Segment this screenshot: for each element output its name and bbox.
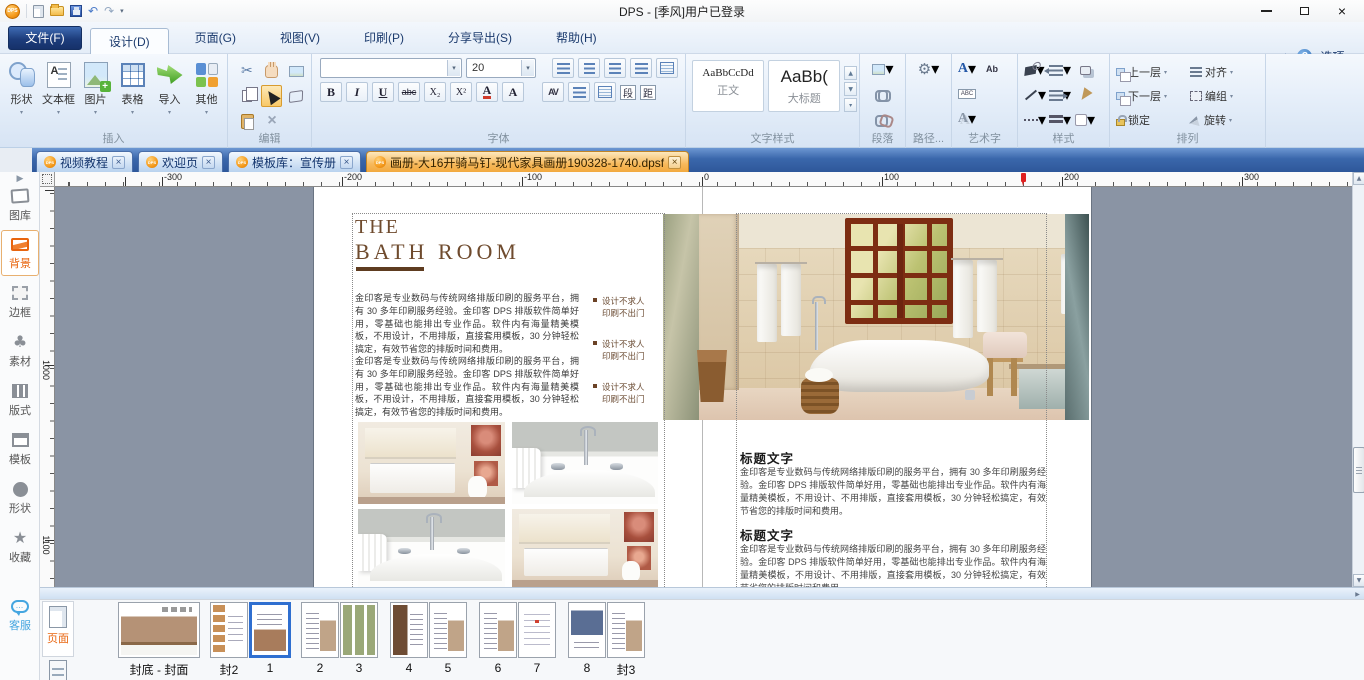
ribbon-group-font: ▾ 20▾ B I U abc X₂ X² A A AV: [312, 54, 686, 148]
titlebar: DPS ↶ ↷ ▾ DPS - [季风]用户已登录 ×: [0, 0, 1364, 22]
thumb-page-8[interactable]: [568, 602, 606, 658]
cursor-icon: [263, 87, 280, 105]
dashed-line-icon: [1024, 119, 1038, 121]
ruler-label: -300: [164, 172, 182, 182]
thumb-page-5[interactable]: [429, 602, 467, 658]
arrow-lines-right-icon: [1049, 90, 1063, 101]
doctab-left-filler: [0, 148, 32, 172]
thumb-label: 封2: [210, 661, 248, 678]
master-page-icon[interactable]: [49, 660, 67, 680]
ribbon-group-style: ▾ ▾ ▾ ▾ ▾ ▾ ▾ 样式: [1018, 54, 1110, 148]
dropdown-icon[interactable]: ▾: [1063, 110, 1071, 130]
delete-x-icon: ×: [267, 112, 276, 130]
layout-grid-icon: [12, 384, 28, 398]
copy-button[interactable]: [236, 85, 258, 107]
thumb-label: 6: [479, 661, 517, 675]
line-weight-button[interactable]: ▾: [1049, 109, 1071, 131]
dropdown-icon[interactable]: ▾: [1087, 110, 1095, 130]
close-tab-icon[interactable]: ×: [112, 156, 125, 169]
wordart-style-button[interactable]: A▾: [956, 58, 978, 80]
thumb-label: 3: [340, 661, 378, 675]
tab-help[interactable]: 帮助(H): [538, 25, 615, 51]
scroll-up-icon[interactable]: ▲: [1353, 172, 1364, 185]
delete-button[interactable]: ×: [261, 110, 283, 132]
ruler-origin-box: [40, 172, 55, 187]
line-weight-icon: [1049, 115, 1063, 125]
align-center-button[interactable]: [578, 58, 600, 78]
lasso-icon: [289, 89, 303, 102]
wordart-shadow-button[interactable]: A▾: [956, 108, 978, 130]
subscript-button[interactable]: X₂: [424, 82, 446, 102]
broken-link-icon: [875, 115, 891, 124]
font-size-combobox[interactable]: 20▾: [466, 58, 536, 78]
ruler-cursor-marker: [1021, 173, 1026, 182]
align-icon: [1190, 67, 1202, 77]
select-tool-button[interactable]: [261, 85, 283, 107]
horizontal-ruler[interactable]: -300 -200 -100 0 100 200 300: [55, 172, 1352, 187]
spellcheck-button[interactable]: ABC: [956, 83, 978, 105]
bring-forward-icon: [1116, 68, 1125, 76]
link-frames-button[interactable]: [872, 83, 894, 105]
paint-bucket-icon: [1025, 64, 1037, 75]
button-label: 形状: [11, 91, 33, 107]
thumb-page-1-selected[interactable]: [249, 602, 291, 658]
thumb-label: 封3: [607, 661, 645, 678]
star-icon: ★: [13, 530, 27, 546]
text-wrap-button[interactable]: ▾: [872, 58, 894, 80]
doc-tab-label: 视频教程: [60, 154, 108, 171]
dropdown-icon[interactable]: ▾: [1038, 110, 1046, 130]
ribbon-group-text-style: AaBbCcDd 正文 AaBb( 大标题 ▲ ▼ ▾ 文字样式: [686, 54, 860, 148]
other-icon: [196, 63, 218, 87]
align-center-icon: [584, 63, 595, 74]
align-right-button[interactable]: [604, 58, 626, 78]
group-label-insert: 插入: [0, 130, 227, 146]
pages-panel: 页面 封底 - 封面 封2 1 2 3 4 5 6 7 8 封3: [40, 599, 1364, 680]
ruler-label: 100: [884, 172, 899, 182]
letter-spacing-button[interactable]: AV: [542, 82, 564, 102]
vertical-ruler[interactable]: 1000 1100: [40, 187, 55, 587]
dropdown-icon[interactable]: ▾: [931, 59, 939, 79]
dps-app: DPS ↶ ↷ ▾ DPS - [季风]用户已登录 × 文件(F) 设计(D) …: [0, 0, 1364, 680]
thumb-label: 2: [301, 661, 339, 675]
dropdown-icon[interactable]: ▾: [447, 60, 460, 76]
italic-button[interactable]: I: [346, 82, 368, 102]
vertical-scroll-thumb[interactable]: [1353, 447, 1364, 493]
window-title: DPS - [季风]用户已登录: [0, 3, 1364, 20]
distribute-icon: [660, 62, 674, 74]
shape-square-icon: [1075, 114, 1087, 126]
button-label: 表格: [122, 91, 144, 107]
dropdown-icon[interactable]: ▾: [131, 109, 134, 116]
copy-style-button[interactable]: [1074, 59, 1096, 81]
close-tab-icon[interactable]: ×: [202, 156, 215, 169]
sidebar-item-favorites[interactable]: ★ 收藏: [1, 524, 39, 570]
menubar: 文件(F) 设计(D) 页面(G) 视图(V) 印刷(P) 分享导出(S) 帮助…: [0, 22, 1364, 54]
spacing-settings-button[interactable]: 距: [640, 85, 656, 100]
style-scroll-up[interactable]: ▲: [844, 66, 857, 80]
window-controls: ×: [1258, 0, 1360, 22]
text-style-body[interactable]: AaBbCcDd 正文: [692, 60, 764, 112]
align-button[interactable]: 对齐▾: [1190, 64, 1262, 80]
doc-tab-template-library[interactable]: DPS 模板库：宣传册 ×: [228, 151, 361, 172]
group-icon: [1190, 91, 1202, 101]
template-icon: [12, 433, 29, 447]
style-preview: AaBb(: [769, 67, 839, 87]
thumb-label: 封底 - 封面: [104, 661, 214, 678]
tab-print[interactable]: 印刷(P): [346, 25, 422, 51]
link-icon: [875, 90, 891, 99]
thumb-page-7[interactable]: [518, 602, 556, 658]
horizontal-scrollbar[interactable]: ▶: [40, 587, 1364, 599]
align-left-button[interactable]: [552, 58, 574, 78]
picture-edit-icon: [289, 66, 304, 77]
gear-icon: ⚙: [918, 60, 931, 78]
dash-style-button[interactable]: ▾: [1024, 109, 1046, 131]
thumb-label: 8: [568, 661, 606, 675]
dps-file-icon: DPS: [44, 156, 56, 168]
highlight-color-button[interactable]: A: [502, 82, 524, 102]
dropdown-icon[interactable]: ▾: [968, 109, 976, 129]
align-left-icon: [557, 63, 570, 74]
pages-tab-label: 页面: [47, 630, 69, 646]
ribbon-group-arrange: 上一层▾ 对齐▾ 下一层▾ 编组▾ 锁定 旋转▾ 排列: [1110, 54, 1266, 148]
align-right-icon: [609, 63, 621, 74]
dropdown-icon[interactable]: ▾: [57, 109, 60, 116]
page-icon: [49, 606, 67, 628]
line-color-button[interactable]: ▾: [1024, 84, 1046, 106]
style-preview: AaBbCcDd: [693, 67, 763, 79]
left-page-margin-guide: [352, 213, 665, 587]
import-arrow-icon: [157, 64, 183, 84]
close-tab-icon[interactable]: ×: [340, 156, 353, 169]
line-spacing-button[interactable]: [568, 82, 590, 102]
picture-icon: [84, 62, 108, 88]
left-sidebar: ▶ 图库 背景 边框 ♣ 素材 版式 模板 形状 ★: [0, 172, 40, 680]
group-label-style: 样式: [1018, 130, 1109, 146]
dps-file-icon: DPS: [374, 156, 386, 168]
ruler-label: 300: [1244, 172, 1259, 182]
sidebar-item-material[interactable]: ♣ 素材: [1, 328, 39, 374]
line-start-button[interactable]: ▾: [1049, 59, 1071, 81]
gallery-icon: [11, 188, 30, 203]
send-backward-button[interactable]: 下一层▾: [1116, 88, 1188, 104]
ruler-label: 1100: [41, 530, 51, 560]
sidebar-item-support[interactable]: … 客服: [1, 592, 39, 638]
minimize-button[interactable]: [1258, 3, 1274, 19]
doc-tab-current-album[interactable]: DPS 画册-大16开骑马钉-现代家具画册190328-1740.dpsf ×: [366, 151, 689, 172]
doc-tab-label: 模板库：宣传册: [252, 154, 336, 171]
sidebar-item-gallery[interactable]: 图库: [1, 182, 39, 228]
pen-line-icon: [1025, 90, 1037, 101]
sidebar-item-border[interactable]: 边框: [1, 279, 39, 325]
dropdown-icon[interactable]: ▾: [885, 59, 893, 79]
unlink-frames-button[interactable]: [872, 108, 894, 130]
thumb-page-2[interactable]: [301, 602, 339, 658]
doc-tab-welcome[interactable]: DPS 欢迎页 ×: [138, 151, 223, 172]
doc-tab-video-tutorial[interactable]: DPS 视频教程 ×: [36, 151, 133, 172]
thumb-inside-back[interactable]: [607, 602, 645, 658]
dropdown-icon[interactable]: ▾: [521, 60, 534, 76]
ribbon-group-path: ⚙▾ 路径...: [906, 54, 952, 148]
group-label-edit: 编辑: [228, 130, 311, 146]
glass-panel-left: [663, 214, 699, 420]
font-name-combobox[interactable]: ▾: [320, 58, 462, 78]
font-color-a-icon: A: [483, 85, 492, 99]
button-label: 文本框: [42, 91, 75, 107]
shape-circle-icon: [13, 482, 28, 497]
lock-button[interactable]: 锁定: [1116, 112, 1188, 128]
thumb-label: 4: [390, 661, 428, 675]
file-menu-button[interactable]: 文件(F): [8, 26, 82, 50]
bold-button[interactable]: B: [320, 82, 342, 102]
thumb-cover[interactable]: [118, 602, 200, 658]
group-label-paragraph: 段落: [860, 130, 905, 146]
ribbon: 形状 ▾ A 文本框 ▾ 图片 ▾ 表格 ▾ 导入 ▾: [0, 54, 1364, 148]
hand-icon: [265, 65, 278, 78]
thumb-page-3[interactable]: [340, 602, 378, 658]
lock-icon: [1116, 119, 1125, 126]
style-name: 正文: [693, 82, 763, 98]
align-justify-icon: [635, 63, 648, 74]
copy-icon: [242, 90, 252, 102]
ribbon-group-wordart: A▾ Ab ABC A▾ 艺术字: [952, 54, 1018, 148]
thumb-page-6[interactable]: [479, 602, 517, 658]
paste-button[interactable]: [236, 110, 258, 132]
document-tabs: DPS 视频教程 × DPS 欢迎页 × DPS 模板库：宣传册 × DPS 画…: [32, 148, 1364, 172]
ribbon-group-paragraph: ▾ 段落: [860, 54, 906, 148]
dps-file-icon: DPS: [146, 156, 158, 168]
path-button[interactable]: ⚙▾: [918, 58, 940, 80]
ruler-label: -200: [344, 172, 362, 182]
shape-effects-button[interactable]: ▾: [1074, 109, 1096, 131]
format-brush-button[interactable]: [1074, 84, 1096, 106]
sidebar-item-template[interactable]: 模板: [1, 426, 39, 472]
scroll-down-icon[interactable]: ▼: [1353, 574, 1364, 587]
group-label-arrange: 排列: [1110, 130, 1265, 146]
button-label: 其他: [196, 91, 218, 107]
style-gallery-expand[interactable]: ▾: [844, 98, 857, 112]
restore-button[interactable]: [1296, 3, 1312, 19]
wordart-a-icon: A: [958, 61, 968, 77]
letter-spacing-icon: AV: [548, 87, 558, 97]
strikethrough-button[interactable]: abc: [398, 82, 420, 102]
group-label-path: 路径...: [906, 130, 951, 146]
ruler-label: -100: [524, 172, 542, 182]
columns-icon: [598, 86, 612, 98]
text-style-title[interactable]: AaBb( 大标题: [768, 60, 840, 112]
doc-tab-label: 欢迎页: [162, 154, 198, 171]
vertical-scrollbar[interactable]: ▲ ▼: [1352, 172, 1364, 587]
clipboard-icon: [241, 114, 254, 129]
duplicate-style-icon: [1080, 66, 1091, 75]
tab-page[interactable]: 页面(G): [177, 25, 254, 51]
ruler-label: 200: [1064, 172, 1079, 182]
text-direction-icon: Ab: [986, 64, 998, 74]
group-label-font: 字体: [312, 130, 685, 146]
right-page-margin-guide: [736, 213, 1047, 587]
font-color-button[interactable]: A: [476, 82, 498, 102]
group-label-wordart: 艺术字: [952, 130, 1017, 146]
thumb-page-4[interactable]: [390, 602, 428, 658]
thumb-inside-front[interactable]: [210, 602, 248, 658]
rotate-button[interactable]: 旋转▾: [1190, 112, 1262, 128]
wooden-stool-left: [697, 350, 727, 402]
dropdown-icon[interactable]: ▾: [205, 109, 208, 116]
button-label: 导入: [159, 91, 181, 107]
underline-button[interactable]: U: [372, 82, 394, 102]
send-backward-icon: [1116, 92, 1125, 100]
close-tab-icon[interactable]: ×: [668, 156, 681, 169]
shape-icon: [8, 60, 36, 90]
text-wrap-icon: [872, 64, 886, 75]
ribbon-empty-space: [1266, 54, 1364, 148]
group-button[interactable]: 编组▾: [1190, 88, 1262, 104]
line-spacing-icon: [573, 87, 586, 98]
dropdown-icon[interactable]: ▾: [968, 59, 976, 79]
table-icon: [121, 63, 145, 87]
dropdown-icon[interactable]: ▾: [20, 109, 23, 116]
rotate-icon: [1189, 114, 1202, 126]
dropdown-icon[interactable]: ▾: [168, 109, 171, 116]
highlight-a-icon: A: [509, 85, 518, 100]
bring-forward-button[interactable]: 上一层▾: [1116, 64, 1188, 80]
lasso-button[interactable]: [285, 85, 307, 107]
ribbon-group-insert: 形状 ▾ A 文本框 ▾ 图片 ▾ 表格 ▾ 导入 ▾: [0, 54, 228, 148]
close-button[interactable]: ×: [1334, 3, 1350, 19]
ruler-label: 0: [704, 172, 709, 182]
pan-button[interactable]: [261, 60, 283, 82]
text-direction-button[interactable]: Ab: [981, 58, 1003, 80]
cut-button[interactable]: ✂: [236, 60, 258, 82]
tab-view[interactable]: 视图(V): [262, 25, 338, 51]
arrow-lines-icon: [1049, 65, 1063, 76]
edit-picture-button[interactable]: [285, 60, 307, 82]
distribute-button[interactable]: [656, 58, 678, 78]
glass-panel-right: [1065, 214, 1089, 420]
chat-bubbles-icon: …: [11, 600, 29, 613]
columns-button[interactable]: [594, 82, 616, 102]
sidebar-item-background[interactable]: 背景: [1, 230, 39, 276]
align-justify-button[interactable]: [630, 58, 652, 78]
ruler-label: 1000: [41, 355, 51, 385]
background-icon: [11, 238, 29, 251]
dropdown-icon[interactable]: ▾: [94, 109, 97, 116]
tab-design[interactable]: 设计(D): [90, 28, 169, 54]
ribbon-group-edit: ✂ × 编辑: [228, 54, 312, 148]
superscript-button[interactable]: X²: [450, 82, 472, 102]
canvas[interactable]: THE BATH ROOM 金印客是专业数码与传统网络排版印刷的服务平台，拥有 …: [55, 187, 1352, 587]
dropdown-icon[interactable]: ▾: [1038, 85, 1046, 105]
dps-file-icon: DPS: [236, 156, 248, 168]
paragraph-settings-button[interactable]: 段: [620, 85, 636, 100]
brush-icon: [1077, 87, 1092, 103]
textbox-icon: A: [47, 62, 71, 88]
style-scroll-down[interactable]: ▼: [844, 82, 857, 96]
abc-icon: ABC: [958, 89, 976, 99]
button-label: 图片: [85, 91, 107, 107]
fill-color-button[interactable]: ▾: [1024, 59, 1046, 81]
pages-tab[interactable]: 页面: [42, 601, 74, 657]
group-label-text-style: 文字样式: [686, 130, 859, 146]
shadow-a-icon: A: [958, 111, 968, 127]
scissors-icon: ✂: [241, 63, 253, 79]
border-icon: [12, 286, 28, 300]
font-size-value: 20: [472, 62, 484, 74]
thumb-label: 1: [249, 661, 291, 675]
tab-share-export[interactable]: 分享导出(S): [430, 25, 530, 51]
dropdown-icon[interactable]: ▾: [1063, 60, 1071, 80]
flower-icon: ♣: [13, 334, 27, 350]
thumb-label: 5: [429, 661, 467, 675]
sidebar-item-shape[interactable]: 形状: [1, 475, 39, 521]
sidebar-item-layout[interactable]: 版式: [1, 377, 39, 423]
doc-tab-label: 画册-大16开骑马钉-现代家具画册190328-1740.dpsf: [390, 154, 664, 171]
line-end-button[interactable]: ▾: [1049, 84, 1071, 106]
thumb-label: 7: [518, 661, 556, 675]
style-name: 大标题: [769, 90, 839, 106]
